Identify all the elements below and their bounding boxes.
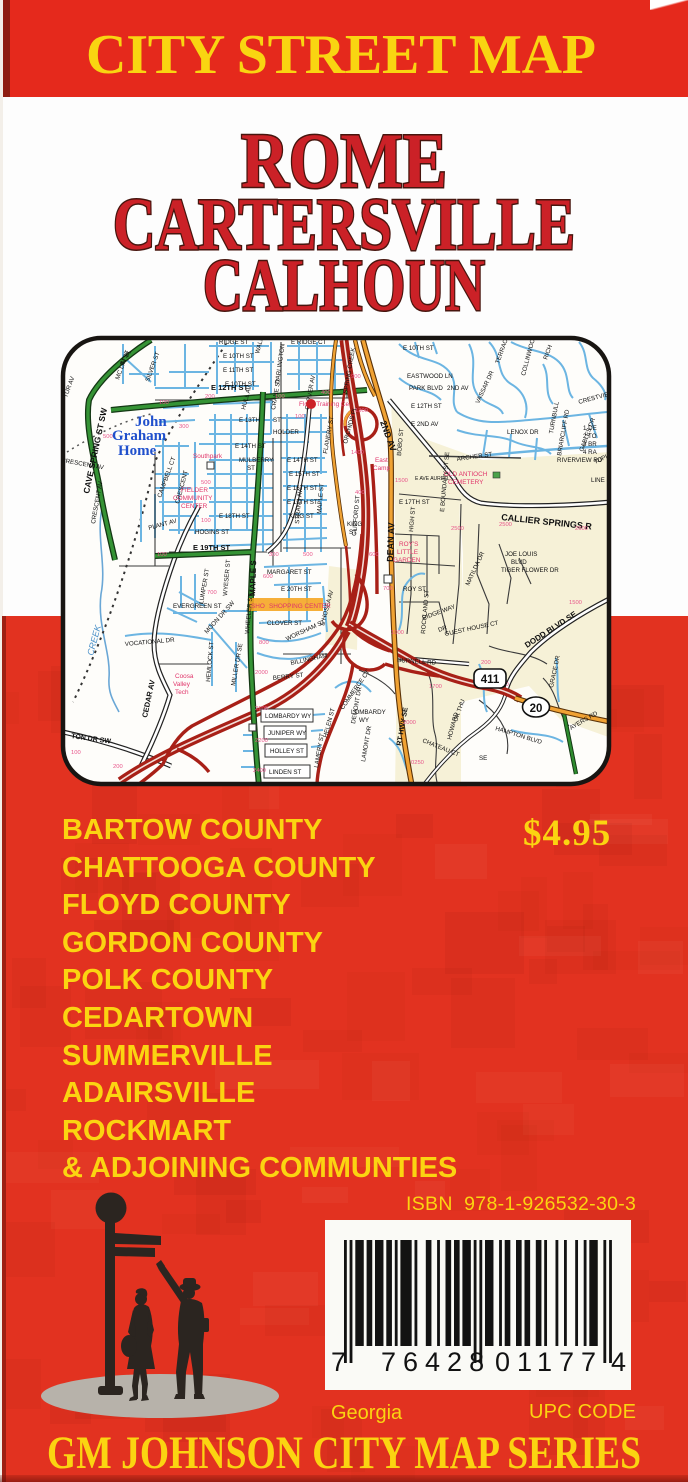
svg-text:JUNIPER WY: JUNIPER WY xyxy=(268,730,306,737)
svg-text:1400: 1400 xyxy=(351,450,364,456)
svg-text:500: 500 xyxy=(103,434,113,440)
svg-text:GARDEN: GARDEN xyxy=(393,557,421,564)
svg-text:Coosa: Coosa xyxy=(175,673,194,680)
svg-text:7: 7 xyxy=(331,1347,346,1377)
svg-text:700: 700 xyxy=(383,586,393,592)
svg-text:900: 900 xyxy=(351,374,361,380)
svg-text:200: 200 xyxy=(205,394,215,400)
svg-text:100: 100 xyxy=(71,750,81,756)
svg-text:East: East xyxy=(375,457,388,464)
svg-text:CEMETERY: CEMETERY xyxy=(448,479,484,486)
svg-text:SE: SE xyxy=(479,755,487,762)
svg-text:2500: 2500 xyxy=(451,526,464,532)
svg-text:200: 200 xyxy=(481,660,491,666)
svg-text:1300: 1300 xyxy=(355,408,368,414)
svg-text:Valley: Valley xyxy=(173,681,191,688)
svg-text:PARK BLVD: PARK BLVD xyxy=(409,385,443,392)
svg-text:OLD ANTIOCH: OLD ANTIOCH xyxy=(444,471,488,478)
svg-text:CITY STREET MAP: CITY STREET MAP xyxy=(86,28,596,84)
svg-text:E 14TH ST: E 14TH ST xyxy=(235,443,266,450)
svg-text:2ND AV: 2ND AV xyxy=(447,385,469,392)
svg-text:2 TO: 2 TO xyxy=(583,433,597,440)
svg-text:ST: ST xyxy=(273,417,281,424)
svg-text:1500: 1500 xyxy=(569,600,582,606)
svg-text:ST: ST xyxy=(247,465,255,472)
svg-text:0250: 0250 xyxy=(411,760,424,766)
svg-text:LENOX DR: LENOX DR xyxy=(507,429,539,436)
svg-text:400: 400 xyxy=(355,490,365,496)
svg-text:1 DE: 1 DE xyxy=(583,425,597,432)
svg-text:E 11TH ST: E 11TH ST xyxy=(223,367,253,374)
svg-text:3 BR: 3 BR xyxy=(583,441,597,448)
svg-text:700: 700 xyxy=(207,590,217,596)
svg-text:LOMBARDY WY: LOMBARDY WY xyxy=(265,713,311,720)
svg-text:CLOVER ST: CLOVER ST xyxy=(267,620,302,627)
svg-text:2400: 2400 xyxy=(253,768,266,774)
svg-text:HOLDER: HOLDER xyxy=(273,429,299,436)
svg-text:SHO: SHO xyxy=(251,603,265,610)
svg-text:E 20TH ST: E 20TH ST xyxy=(281,586,312,593)
svg-text:100: 100 xyxy=(201,518,211,524)
svg-text:300: 300 xyxy=(269,552,279,558)
svg-text:4: 4 xyxy=(611,1347,626,1377)
svg-text:1000: 1000 xyxy=(391,630,404,636)
svg-text:MAPLE S: MAPLE S xyxy=(248,560,258,597)
svg-text:SHOPPING CENTER: SHOPPING CENTER xyxy=(269,603,331,610)
svg-text:E 14TH ST: E 14TH ST xyxy=(287,457,318,464)
svg-text:E 2ND AV: E 2ND AV xyxy=(411,421,439,428)
svg-text:EASTWOOD LN: EASTWOOD LN xyxy=(407,373,453,380)
svg-text:200: 200 xyxy=(113,764,123,770)
svg-text:76428: 76428 xyxy=(381,1347,491,1377)
svg-text:LITTLE: LITTLE xyxy=(397,549,418,556)
svg-text:HOLLEY ST: HOLLEY ST xyxy=(270,748,304,755)
svg-text:E 17TH ST: E 17TH ST xyxy=(399,499,430,506)
svg-text:400: 400 xyxy=(321,390,331,396)
svg-text:01177: 01177 xyxy=(495,1347,603,1377)
svg-text:MULBERRY: MULBERRY xyxy=(239,457,273,464)
svg-text:E 15TH ST: E 15TH ST xyxy=(289,471,320,478)
svg-text:TIGER FLOWER DR: TIGER FLOWER DR xyxy=(501,567,559,574)
svg-text:E 13TH: E 13TH xyxy=(239,417,260,424)
svg-text:4 RA: 4 RA xyxy=(583,449,598,456)
svg-text:FIELDER: FIELDER xyxy=(181,487,208,494)
svg-text:E 18TH ST: E 18TH ST xyxy=(219,513,250,520)
svg-text:411: 411 xyxy=(481,674,500,686)
svg-text:100: 100 xyxy=(295,414,305,420)
svg-text:E 10TH ST: E 10TH ST xyxy=(223,353,254,360)
svg-text:MARGARET ST: MARGARET ST xyxy=(267,569,312,576)
svg-text:GM JOHNSON CITY MAP SERIES: GM JOHNSON CITY MAP SERIES xyxy=(47,1428,641,1479)
svg-text:2000: 2000 xyxy=(255,670,268,676)
svg-text:Southpark: Southpark xyxy=(193,453,223,460)
svg-text:E 12TH ST: E 12TH ST xyxy=(411,403,442,410)
svg-text:E 10TH ST: E 10TH ST xyxy=(403,345,434,352)
svg-text:CENTER: CENTER xyxy=(181,503,208,510)
svg-text:2200: 2200 xyxy=(255,738,268,744)
svg-text:2100: 2100 xyxy=(255,706,268,712)
svg-text:100: 100 xyxy=(275,394,285,400)
svg-text:2600: 2600 xyxy=(575,526,588,532)
svg-text:500: 500 xyxy=(303,552,313,558)
svg-text:E 12TH ST: E 12TH ST xyxy=(211,383,249,392)
svg-text:Graham: Graham xyxy=(112,428,167,444)
svg-text:EVERGREEN ST: EVERGREEN ST xyxy=(173,603,222,610)
svg-text:LINDEN ST: LINDEN ST xyxy=(269,769,302,776)
svg-text:HOGINS ST: HOGINS ST xyxy=(195,529,229,536)
svg-text:800: 800 xyxy=(259,640,269,646)
svg-text:Home: Home xyxy=(118,443,157,459)
svg-text:CALHOUN: CALHOUN xyxy=(203,245,485,327)
svg-text:ROY ST: ROY ST xyxy=(403,586,426,593)
svg-text:Tech: Tech xyxy=(175,689,189,696)
svg-text:RIVERVIEW RD: RIVERVIEW RD xyxy=(557,457,603,464)
svg-text:COMMUNITY: COMMUNITY xyxy=(173,495,213,502)
svg-text:100: 100 xyxy=(157,552,167,558)
svg-text:WY: WY xyxy=(359,717,369,724)
svg-text:Camp: Camp xyxy=(373,465,390,472)
svg-text:100: 100 xyxy=(159,400,169,406)
svg-text:300: 300 xyxy=(179,424,189,430)
svg-text:JOE LOUIS: JOE LOUIS xyxy=(505,551,537,558)
svg-text:600: 600 xyxy=(369,552,379,558)
svg-text:2500: 2500 xyxy=(499,522,512,528)
svg-text:1700: 1700 xyxy=(429,684,442,690)
svg-text:2000: 2000 xyxy=(403,720,416,726)
svg-text:ROY'S: ROY'S xyxy=(399,541,418,548)
svg-text:BLVD: BLVD xyxy=(511,559,527,566)
svg-text:1500: 1500 xyxy=(395,478,408,484)
svg-text:600: 600 xyxy=(263,574,273,580)
svg-text:500: 500 xyxy=(201,480,211,486)
svg-text:E 19TH ST: E 19TH ST xyxy=(193,543,231,552)
svg-text:20: 20 xyxy=(530,703,543,715)
